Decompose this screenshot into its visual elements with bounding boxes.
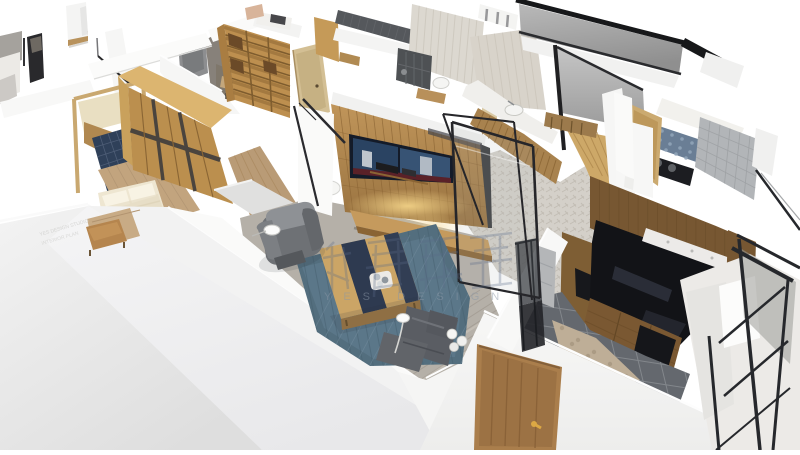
svg-text:YES DESIGN: YES DESIGN [324, 291, 511, 303]
